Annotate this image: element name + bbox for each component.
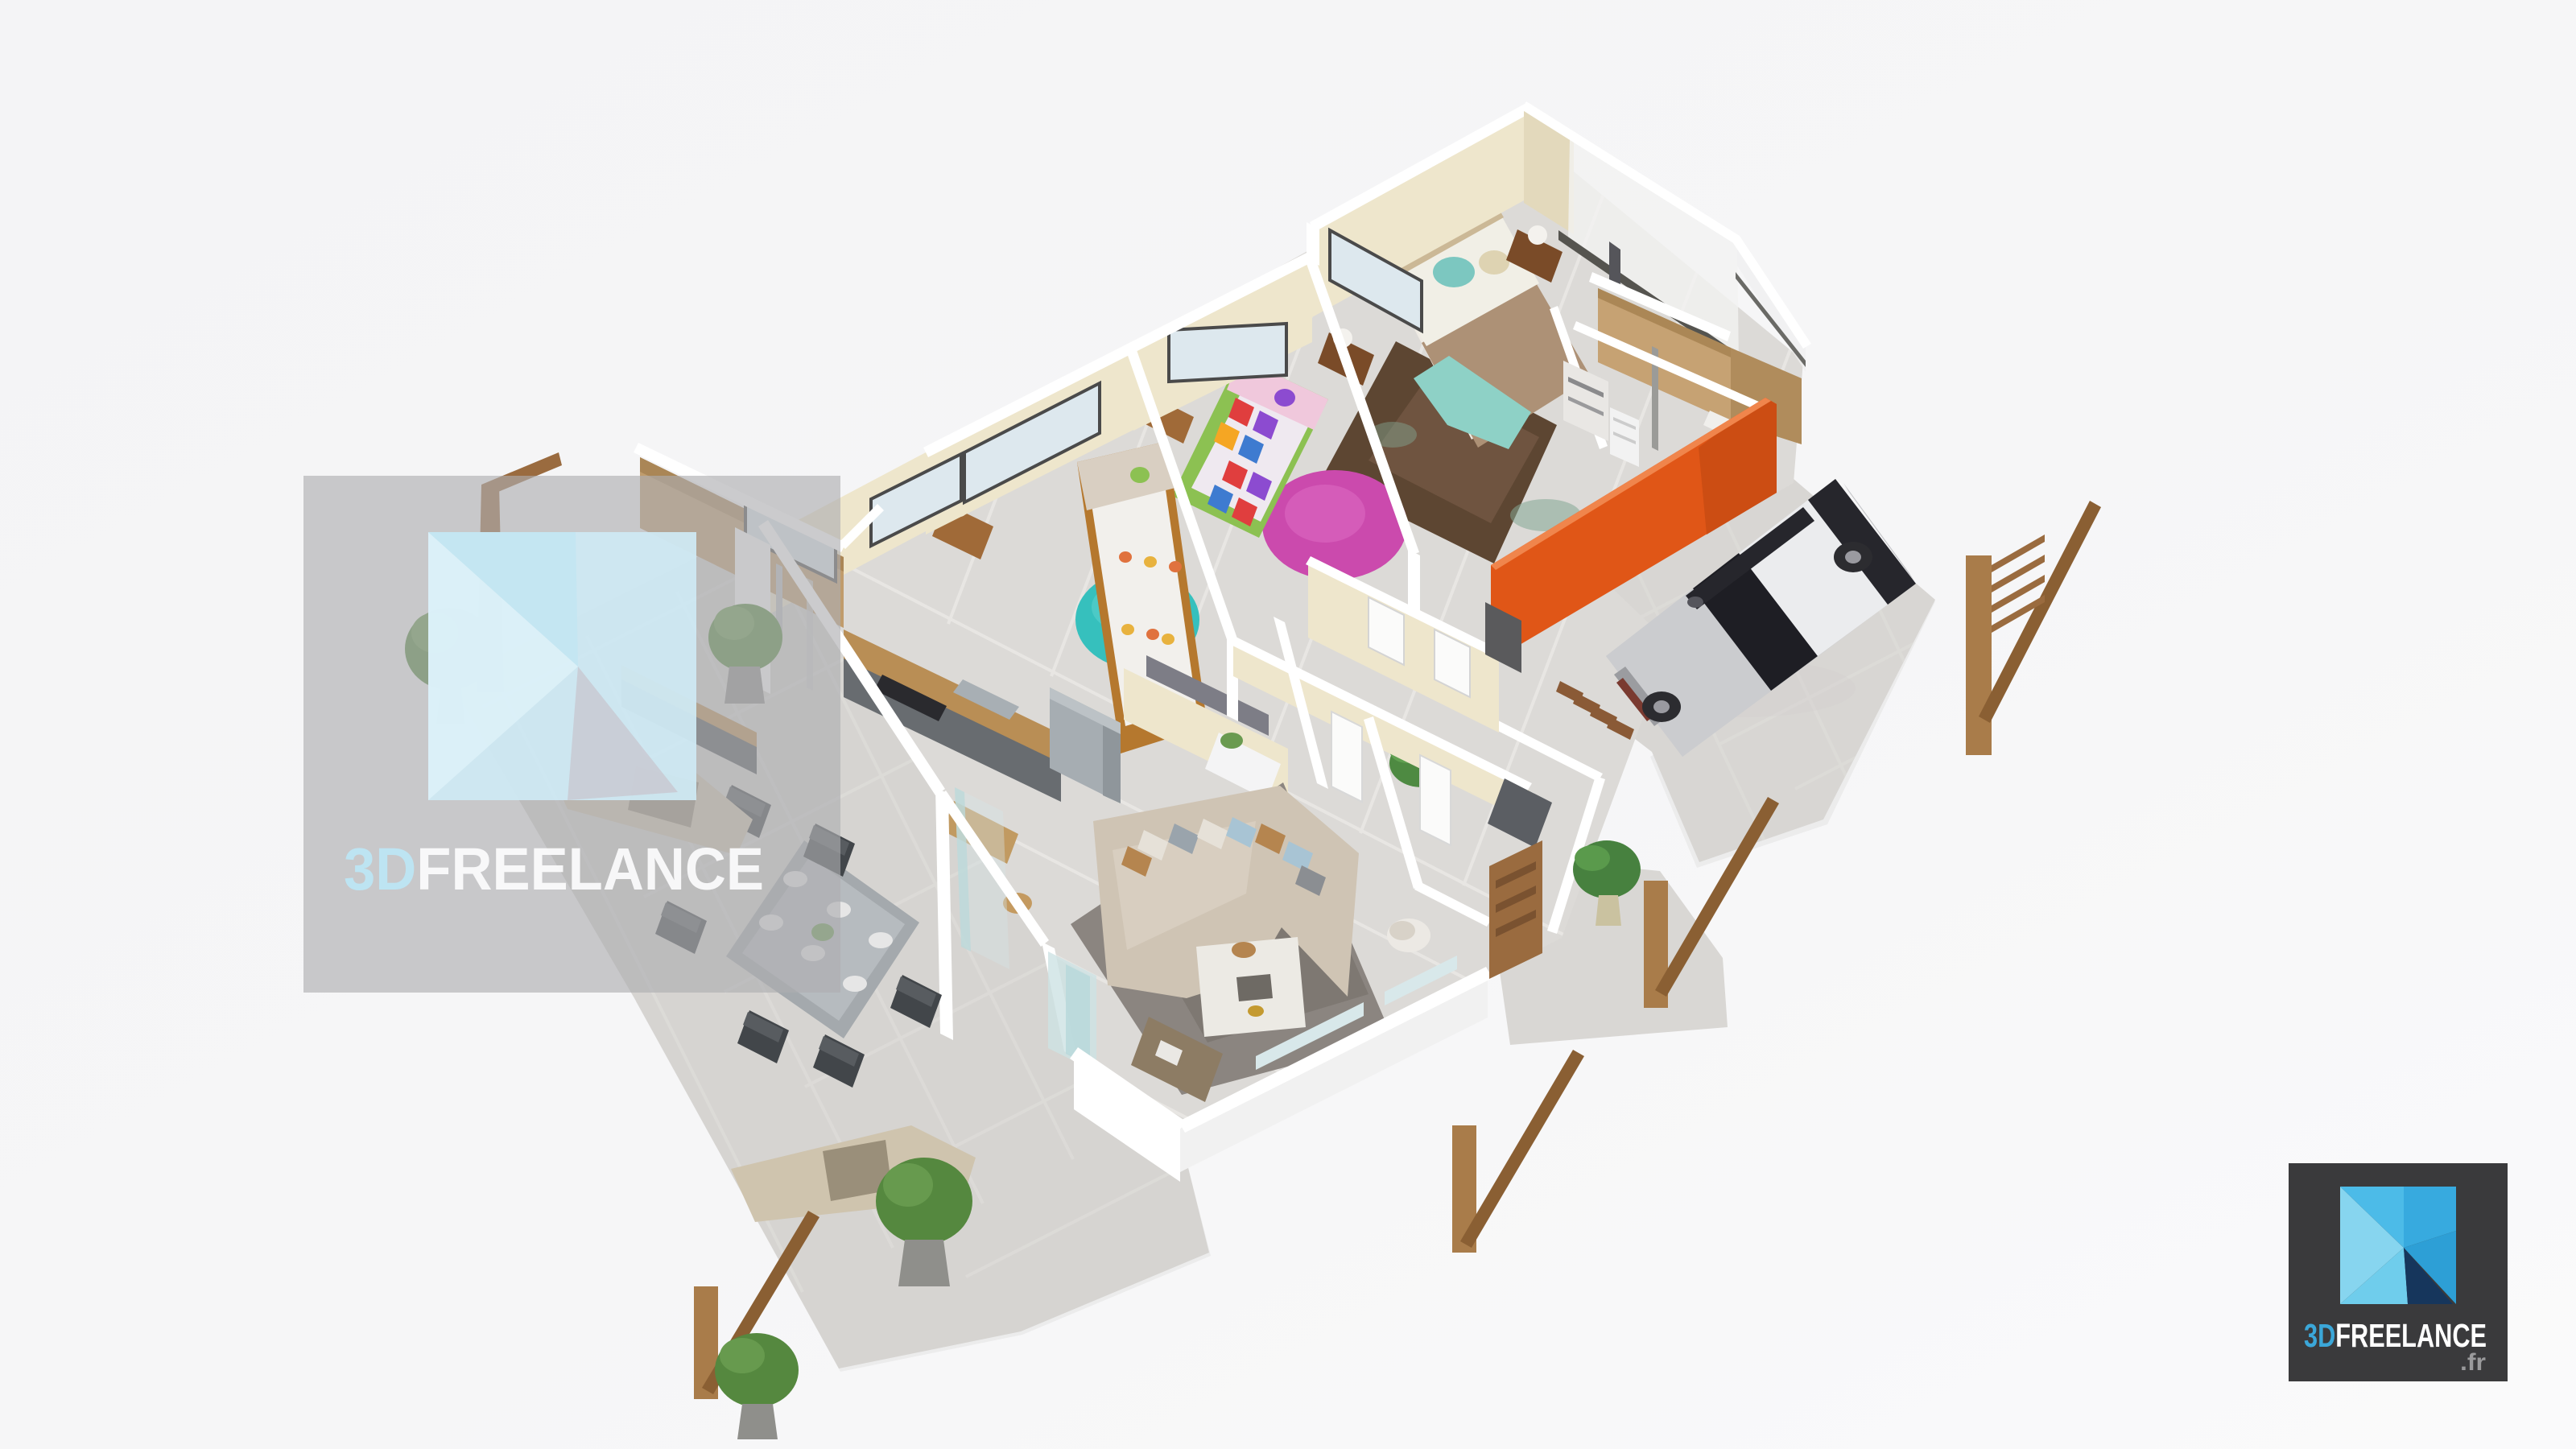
svg-text:3DFREELANCE: 3DFREELANCE	[2304, 1317, 2487, 1354]
svg-text:3DFREELANCE: 3DFREELANCE	[344, 836, 764, 902]
svg-text:.fr: .fr	[2460, 1349, 2486, 1376]
